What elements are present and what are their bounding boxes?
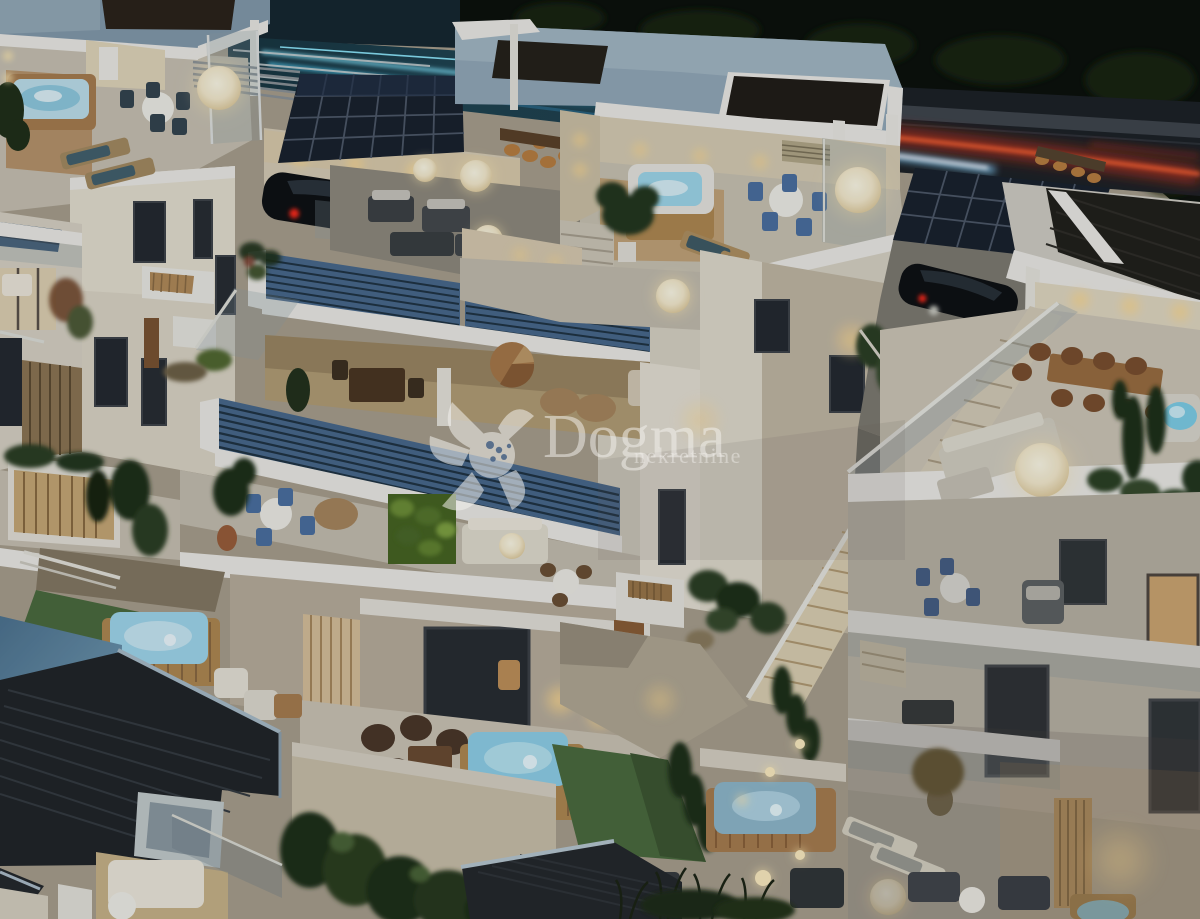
svg-text:nekretnine: nekretnine	[634, 443, 742, 468]
